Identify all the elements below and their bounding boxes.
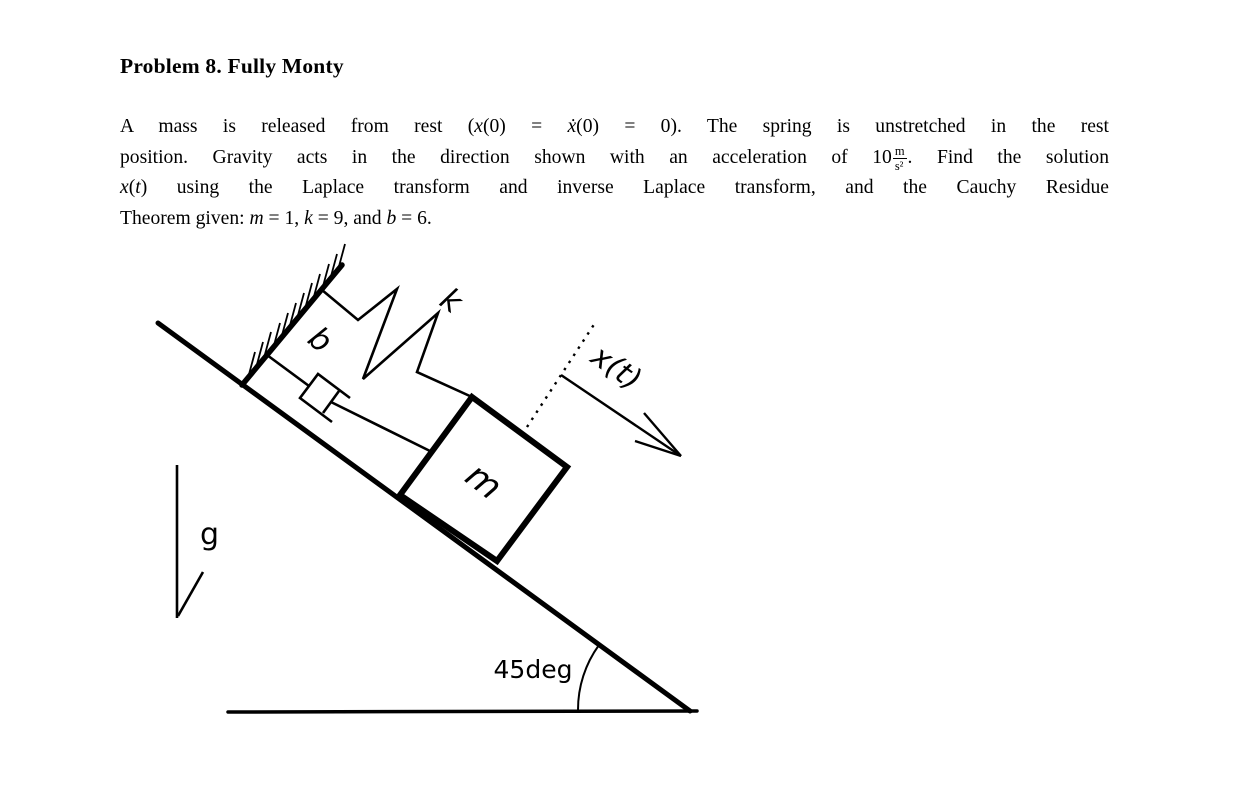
incline-diagram: b k m x(t) g 45deg (0, 0, 1247, 793)
displacement-label: x(t) (584, 338, 648, 398)
damper (267, 355, 432, 452)
angle-arc (578, 645, 599, 710)
damper-rod-wall (267, 355, 309, 386)
mass-label: m (458, 456, 510, 509)
document-page: Problem 8. Fully Monty A mass is release… (0, 0, 1247, 793)
angle-label: 45deg (494, 655, 573, 684)
ground-line (228, 711, 697, 712)
damper-label: b (301, 320, 339, 360)
gravity-label: g (200, 517, 219, 552)
spring-label: k (433, 281, 469, 321)
damper-cylinder (300, 374, 350, 422)
damper-rod-mass (331, 402, 432, 452)
